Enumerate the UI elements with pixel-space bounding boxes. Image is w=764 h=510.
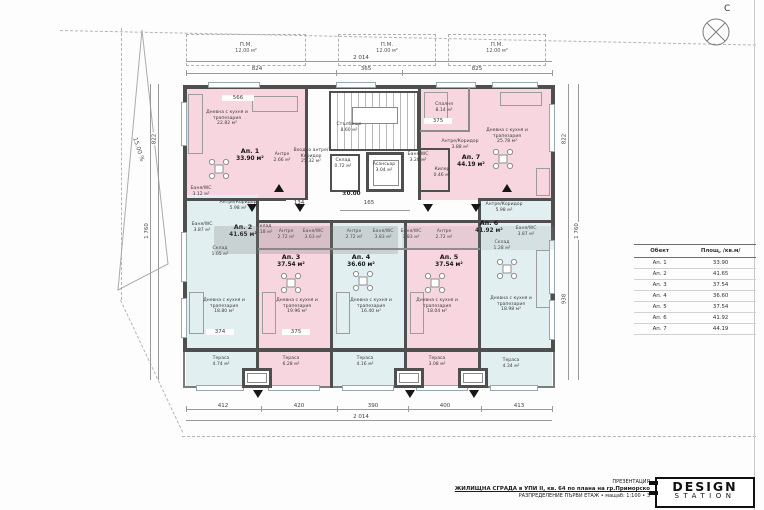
window [336, 82, 376, 88]
table-row: Ап. 537.54 [634, 302, 756, 313]
window [549, 104, 555, 152]
room-area: 25.78 м² [480, 139, 534, 145]
apartment-3-label: Ап. 3 37.54 м² [268, 254, 314, 269]
window [181, 298, 187, 338]
dim-corridor: 165 [356, 200, 382, 206]
room-name: Склад [336, 158, 351, 163]
room-area: 22.82 м² [198, 121, 256, 127]
planter-box [242, 368, 272, 388]
room-name: Антре/Коридор [486, 202, 523, 207]
dim-line [150, 84, 151, 380]
dim-tick [408, 406, 409, 412]
entrance-arrow-icon [253, 390, 263, 398]
dim-tick [552, 70, 553, 76]
room-area: 18.98 м² [482, 307, 540, 313]
room-label: Килер 0.46 м² [428, 167, 456, 178]
room-label: Дневна с кухня и трапезария 22.82 м² [198, 110, 256, 127]
dim-tick [186, 70, 187, 76]
room-label: Антре 2.66 м² [266, 152, 298, 163]
dim-tick [402, 70, 403, 76]
apartment-area: 37.54 м² [426, 262, 472, 269]
project-title: ЖИЛИЩНА СГРАДА в УПИ II, кв. 64 по плана… [428, 486, 650, 492]
room-name: Дневна с кухня и трапезария [276, 298, 318, 309]
dim-right-upper: 822 [561, 133, 567, 146]
property-line-diagonal [120, 300, 183, 433]
cell-object: Ап. 2 [634, 271, 685, 277]
stair-label: Стълбище 8.60 м² [330, 122, 368, 133]
planter-inner [399, 373, 419, 383]
window [342, 385, 394, 391]
dim-line [186, 61, 552, 62]
logo-bar [649, 491, 658, 495]
window [196, 385, 244, 391]
room-area: 4.16 м² [346, 362, 384, 368]
room-label: Дневна с кухня и трапезария 16.40 м² [342, 298, 400, 315]
parking-area: 12.00 м² [187, 48, 305, 54]
dim-inner-2: 375 [424, 118, 452, 124]
presentation-kicker: ПРЕЗЕНТАЦИЯ [428, 479, 650, 485]
window [181, 232, 187, 282]
window [268, 385, 320, 391]
room-area: 8.60 м² [330, 128, 368, 134]
table-row: Ап. 337.54 [634, 280, 756, 291]
room-name: Баня/WC [191, 222, 212, 227]
drawing-subtitle: РАЗПРЕДЕЛЕНИЕ ПЪРВИ ЕТАЖ • мащаб: 1:100 … [428, 493, 650, 499]
cell-object: Ап. 1 [634, 260, 685, 266]
room-area: 3.08 м² [418, 362, 456, 368]
room-label: Дневна с кухня и трапезария 19.96 м² [268, 298, 326, 315]
room-name: Антре/Коридор [442, 139, 479, 144]
room-area: 18.04 м² [408, 309, 466, 315]
room-label: Дневна с кухня и трапезария 18.98 м² [482, 296, 540, 313]
window [208, 82, 260, 88]
dim-line [158, 84, 159, 380]
cell-object: Ап. 3 [634, 282, 685, 288]
dim-top-seg2: 365 [350, 66, 382, 72]
parking-area: 12.00 м² [339, 48, 435, 54]
door-arrow-icon [471, 204, 481, 212]
room-area: 3.04 м² [362, 168, 406, 174]
room-label: Тераса 4.16 м² [346, 356, 384, 367]
cell-object: Ап. 4 [634, 293, 685, 299]
floor-plan-sheet: С П.М. 12.00 м² П.М. 12.00 м² П.М. 12.00… [0, 0, 764, 510]
dim-line [186, 409, 552, 410]
dim-left-upper: 822 [151, 133, 157, 146]
window [490, 385, 538, 391]
wall [420, 130, 470, 132]
window [181, 102, 187, 146]
room-area: 3.12 м² [185, 192, 217, 198]
room-label: Антре/Коридор 5.98 м² [216, 200, 260, 211]
dim-line [568, 84, 569, 380]
planter-box [458, 368, 488, 388]
room-area: 5.98 м² [482, 208, 526, 214]
dim-bottom-total: 2 014 [340, 414, 382, 420]
design-station-logo: DESIGN STATION [655, 477, 755, 508]
apartment-number: Ап. 5 [426, 254, 472, 262]
dim-top-seg3: 825 [456, 66, 498, 72]
room-label: Дневна с кухня и трапезария 18.80 м² [196, 298, 252, 315]
room-name: Антре/Коридор [220, 200, 257, 205]
dim-inner-1: 566 [222, 95, 254, 101]
dim-top-seg1: 824 [236, 66, 278, 72]
table-row: Ап. 641.92 [634, 313, 756, 324]
cell-area: 44.19 [685, 326, 756, 332]
watermark [402, 226, 554, 250]
room-name: Асансьор [373, 162, 395, 167]
legend-table: Обект Площ, /кв.м/ Ап. 133.90 Ап. 241.65… [634, 244, 756, 335]
planter-inner [463, 373, 483, 383]
table-row: Ап. 744.19 [634, 324, 756, 335]
cell-area: 37.54 [685, 282, 756, 288]
room-name: Антре [275, 152, 290, 157]
room-name: Дневна с кухня и трапезария [416, 298, 458, 309]
dim-line [186, 73, 552, 74]
room-label: Тераса 4.74 м² [202, 356, 240, 367]
door-arrow-icon [295, 204, 305, 212]
cell-area: 33.90 [685, 260, 756, 266]
logo-word-station: STATION [657, 493, 753, 500]
room-area: 3.88 м² [438, 145, 482, 151]
window [492, 82, 538, 88]
room-name: Баня/WC [190, 186, 211, 191]
room-label: Тераса 4.34 м² [492, 358, 530, 369]
header-area: Площ, /кв.м/ [685, 248, 756, 254]
parking-area: 12.00 м² [449, 48, 545, 54]
apartment-area: 36.60 м² [338, 262, 384, 269]
table-row: Ап. 436.60 [634, 291, 756, 302]
planter-box [394, 368, 424, 388]
cell-area: 41.92 [685, 315, 756, 321]
apartment-5-label: Ап. 5 37.54 м² [426, 254, 472, 269]
apartment-4-label: Ап. 4 36.60 м² [338, 254, 384, 269]
room-name: Входно антре/ Коридор [294, 148, 329, 159]
cell-object: Ап. 6 [634, 315, 685, 321]
room-name: Дневна с кухня и трапезария [206, 110, 248, 121]
north-label: С [724, 4, 730, 14]
room-area: 6.28 м² [272, 362, 310, 368]
apartment-area: 37.54 м² [268, 262, 314, 269]
dim-tick [336, 70, 337, 76]
entrance-arrow-icon [405, 390, 415, 398]
apartment-number: Ап. 3 [268, 254, 314, 262]
window [436, 82, 476, 88]
apartment-number: Ап. 4 [338, 254, 384, 262]
room-name: Тераса [357, 356, 374, 361]
dim-top-total: 2 014 [340, 55, 382, 61]
room-name: Тераса [429, 356, 446, 361]
apartment-number: Ап. 7 [448, 154, 494, 162]
dim-bottom-seg4: 400 [426, 403, 464, 409]
room-name: Спалня [435, 102, 453, 107]
wall [305, 88, 308, 200]
room-label: Баня/WC 3.12 м² [185, 186, 217, 197]
room-area: 0.46 м² [428, 173, 456, 179]
room-area: 18.80 м² [196, 309, 252, 315]
wall [468, 88, 470, 132]
property-line-bottom [182, 436, 756, 437]
room-area: 5.98 м² [216, 206, 260, 212]
room-name: Баня/WC [407, 152, 428, 157]
compass-icon [694, 6, 738, 50]
cell-object: Ап. 5 [634, 304, 685, 310]
cell-area: 37.54 [685, 304, 756, 310]
room-label: Антре/Коридор 5.98 м² [482, 202, 526, 213]
room-name: Килер [435, 167, 450, 172]
room-label: Дневна с кухня и трапезария 18.04 м² [408, 298, 466, 315]
room-area: 4.74 м² [202, 362, 240, 368]
door-arrow-icon [274, 184, 284, 192]
room-label: Спалня 8.14 м² [426, 102, 462, 113]
room-label: Баня/WC 3.20 м² [402, 152, 434, 163]
dim-inner-4: 375 [282, 329, 310, 335]
entrance-arrow-icon [469, 390, 479, 398]
room-area: 19.96 м² [268, 309, 326, 315]
planter-inner [247, 373, 267, 383]
legend-table-header: Обект Площ, /кв.м/ [634, 244, 756, 258]
room-name: Дневна с кухня и трапезария [203, 298, 245, 309]
level-mark: ±0.00 [342, 191, 361, 197]
logo-bar [649, 481, 658, 485]
room-area: 8.14 м² [426, 108, 462, 114]
window [549, 300, 555, 340]
table-row: Ап. 133.90 [634, 258, 756, 269]
header-object: Обект [634, 248, 685, 254]
dim-right-total: 1 760 [574, 222, 580, 240]
dim-left-total: 1 760 [144, 222, 150, 240]
elevator-label: Асансьор 3.04 м² [362, 162, 406, 173]
cell-area: 36.60 [685, 293, 756, 299]
dim-line [186, 420, 552, 421]
dim-line [340, 210, 410, 211]
room-area: 4.34 м² [492, 364, 530, 370]
room-label: Дневна с кухня и трапезария 25.78 м² [480, 128, 534, 145]
dim-tick [552, 406, 553, 412]
door-arrow-icon [502, 184, 512, 192]
room-area: 0.72 м² [328, 164, 358, 170]
room-name: Стълбище [336, 122, 361, 127]
table-row: Ап. 241.65 [634, 269, 756, 280]
room-area: 3.20 м² [402, 158, 434, 164]
dim-inner-3: 374 [206, 329, 234, 335]
room-label: Тераса 3.08 м² [418, 356, 456, 367]
room-name: Тераса [503, 358, 520, 363]
cell-object: Ап. 7 [634, 326, 685, 332]
room-name: Дневна с кухня и трапезария [350, 298, 392, 309]
watermark [214, 226, 398, 254]
room-label: Тераса 6.28 м² [272, 356, 310, 367]
dim-tick [337, 406, 338, 412]
dim-bottom-seg5: 413 [500, 403, 538, 409]
door-arrow-icon [423, 204, 433, 212]
dim-bottom-seg1: 412 [204, 403, 242, 409]
room-name: Дневна с кухня и трапезария [490, 296, 532, 307]
room-area: 16.40 м² [342, 309, 400, 315]
room-name: Тераса [283, 356, 300, 361]
storage-label: Склад 0.72 м² [328, 158, 358, 169]
dim-bottom-seg3: 390 [354, 403, 392, 409]
dim-tick [481, 406, 482, 412]
room-name: Тераса [213, 356, 230, 361]
dim-tick [261, 406, 262, 412]
dim-bottom-seg2: 420 [280, 403, 318, 409]
room-name: Дневна с кухня и трапезария [486, 128, 528, 139]
wall [480, 198, 552, 201]
cell-area: 41.65 [685, 271, 756, 277]
title-block: ПРЕЗЕНТАЦИЯ ЖИЛИЩНА СГРАДА в УПИ II, кв.… [428, 479, 650, 499]
dim-right-lower: 938 [561, 293, 567, 306]
dim-tick [186, 406, 187, 412]
room-label: Антре/Коридор 3.88 м² [438, 139, 482, 150]
room-area: 2.66 м² [266, 158, 298, 164]
